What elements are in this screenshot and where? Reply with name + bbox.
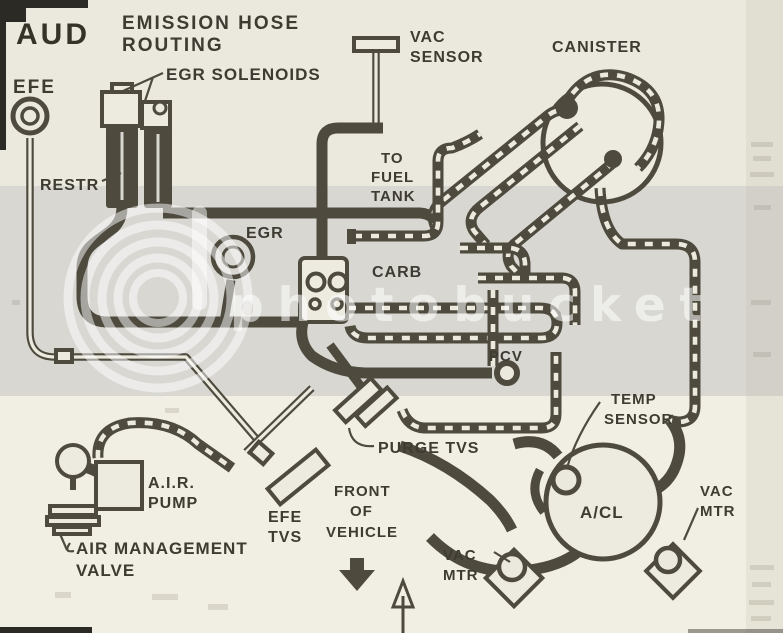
air-management-valve-label-line1: AIR MANAGEMENT — [76, 539, 248, 558]
purge-tvs-label: PURGE TVS — [378, 440, 479, 457]
pcv-valve — [497, 363, 517, 383]
efe-tvs-label-line1: EFE — [268, 509, 302, 526]
watermark-b-stem — [192, 206, 207, 310]
to-fuel-tank-label-line3: TANK — [371, 188, 416, 205]
temp-sensor-label-line2: SENSOR — [604, 411, 673, 428]
vac-mtr-right-label-line1: VAC — [700, 483, 734, 500]
vac-sensor-fitting — [354, 38, 398, 51]
air-pump-label-line1: A.I.R. — [148, 475, 195, 492]
front-of-vehicle-label-line3: VEHICLE — [326, 524, 398, 541]
canister-port-2 — [604, 150, 622, 168]
restr-label: RESTR — [40, 177, 99, 194]
air-pump-label-line2: PUMP — [148, 495, 198, 512]
efe-label: EFE — [13, 77, 56, 98]
solenoid-left-body — [102, 92, 140, 126]
air-pump-body — [96, 462, 142, 509]
canister-port-1 — [556, 97, 578, 119]
temp-sensor-port — [553, 467, 579, 493]
vac-mtr-left-label-line1: VAC — [443, 547, 477, 564]
efe-grommet — [13, 99, 47, 133]
canister-label: CANISTER — [552, 39, 642, 56]
efe-pipe-connector — [56, 350, 72, 362]
diagram-code-label: AUD — [16, 18, 90, 51]
diagram-title-line2: ROUTING — [122, 35, 224, 56]
pcv-label: PCV — [489, 348, 523, 365]
scan-edge-bottom-right — [688, 629, 783, 633]
air-management-valve-label-line2: VALVE — [76, 561, 135, 580]
scan-edge-left — [0, 0, 6, 150]
egr-solenoids-label: EGR SOLENOIDS — [166, 65, 321, 84]
air-pump-pulley — [57, 445, 89, 477]
diagram-title-line1: EMISSION HOSE — [122, 13, 300, 34]
vac-sensor-label-line2: SENSOR — [410, 49, 484, 66]
valve-base-plate-2 — [47, 517, 99, 525]
egr-solenoids — [102, 84, 172, 208]
emission-hose-routing-diagram: AUD EMISSION HOSE ROUTING EFE EGR SOLENO… — [0, 0, 783, 633]
fuel-tank-hose-end-cap — [347, 229, 356, 244]
egr-label: EGR — [246, 225, 284, 242]
vac-sensor-label-line1: VAC — [410, 29, 446, 46]
scanned-vacuum-diagram-page: AUD EMISSION HOSE ROUTING EFE EGR SOLENO… — [0, 0, 783, 633]
acl-label: A/CL — [580, 503, 624, 522]
scan-edge-bottom — [0, 627, 92, 633]
efe-tvs-label-line2: TVS — [268, 529, 302, 546]
to-fuel-tank-label-line1: TO — [381, 150, 404, 167]
front-of-vehicle-label-line2: OF — [350, 503, 373, 520]
acl-body — [546, 445, 660, 559]
valve-base-plate-3 — [54, 527, 90, 534]
to-fuel-tank-label-line2: FUEL — [371, 169, 414, 186]
temp-sensor-label-line1: TEMP — [611, 391, 657, 408]
valve-base-plate-1 — [50, 506, 96, 515]
vac-mtr-left-label-line2: MTR — [443, 567, 479, 584]
solenoid-port — [154, 102, 166, 114]
vac-mtr-right-label-line2: MTR — [700, 503, 736, 520]
front-of-vehicle-label-line1: FRONT — [334, 483, 391, 500]
page-edge-strip — [746, 0, 783, 633]
